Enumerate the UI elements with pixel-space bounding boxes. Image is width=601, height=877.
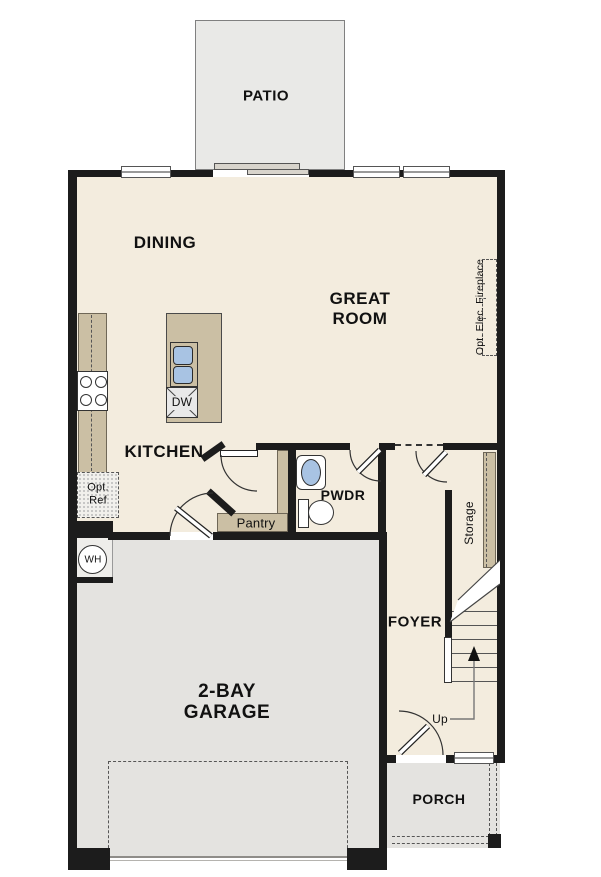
- up-label: Up: [432, 713, 448, 727]
- pantry-door-swing: [221, 455, 257, 491]
- opt-ref-label: Ref: [89, 495, 107, 508]
- great-room-label: GREAT: [330, 289, 391, 309]
- fireplace-label: Opt. Elec. Fireplace: [474, 259, 486, 355]
- kitchen-label: KITCHEN: [124, 442, 203, 462]
- patio-label: PATIO: [243, 87, 289, 104]
- storage-label: Storage: [463, 501, 477, 544]
- powder-door-leaf: [358, 450, 380, 472]
- pantry-label: Pantry: [237, 517, 276, 532]
- great-room-label: ROOM: [333, 309, 388, 329]
- stair-break: [450, 560, 500, 622]
- dishwasher-label: DW: [171, 396, 193, 410]
- plan-linework-layer: [0, 0, 601, 877]
- up-arrow-line: [450, 657, 474, 719]
- foyer-label: FOYER: [388, 613, 442, 630]
- garage-entry-door-leaf: [176, 508, 211, 536]
- porch-label: PORCH: [412, 791, 465, 807]
- dining-label: DINING: [134, 233, 197, 253]
- powder-room-label: PWDR: [321, 487, 366, 503]
- water-heater-label: WH: [84, 554, 101, 566]
- up-arrow-head: [468, 646, 480, 661]
- storage-door-leaf: [424, 452, 446, 475]
- floor-plan: PATIO DINING GREAT ROOM KITCHEN DW Opt. …: [0, 0, 601, 877]
- opt-ref-label: Opt.: [87, 482, 109, 495]
- garage-label: 2-BAY: [198, 681, 256, 703]
- front-door-leaf: [400, 726, 428, 753]
- garage-label: GARAGE: [184, 702, 270, 724]
